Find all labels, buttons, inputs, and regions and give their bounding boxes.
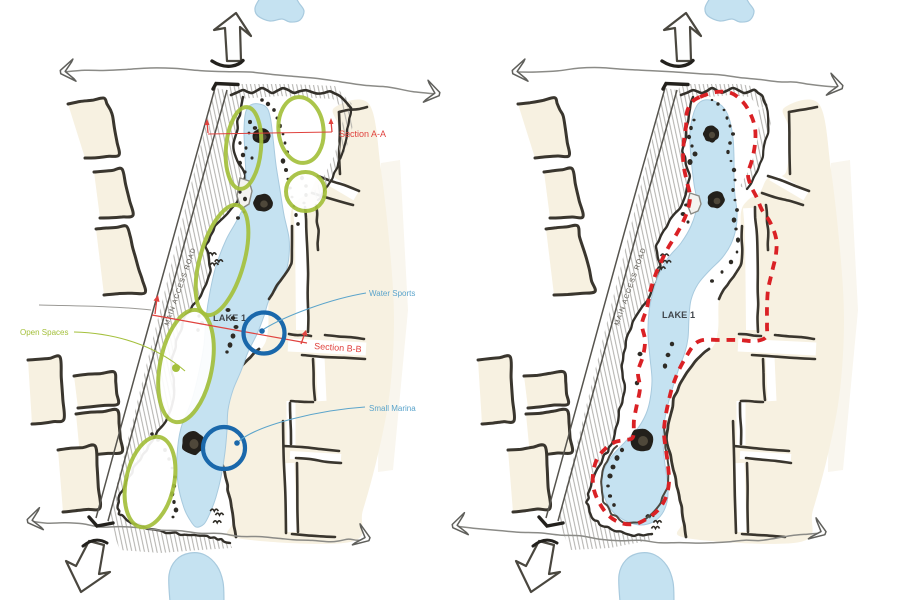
svg-text:LAKE 1: LAKE 1 (662, 310, 695, 320)
svg-text:Section A-A: Section A-A (339, 129, 386, 139)
svg-text:Open Spaces: Open Spaces (20, 328, 68, 337)
svg-text:Small Marina: Small Marina (369, 404, 416, 413)
svg-text:LAKE 1: LAKE 1 (213, 313, 246, 323)
svg-text:Water Sports: Water Sports (369, 289, 415, 298)
